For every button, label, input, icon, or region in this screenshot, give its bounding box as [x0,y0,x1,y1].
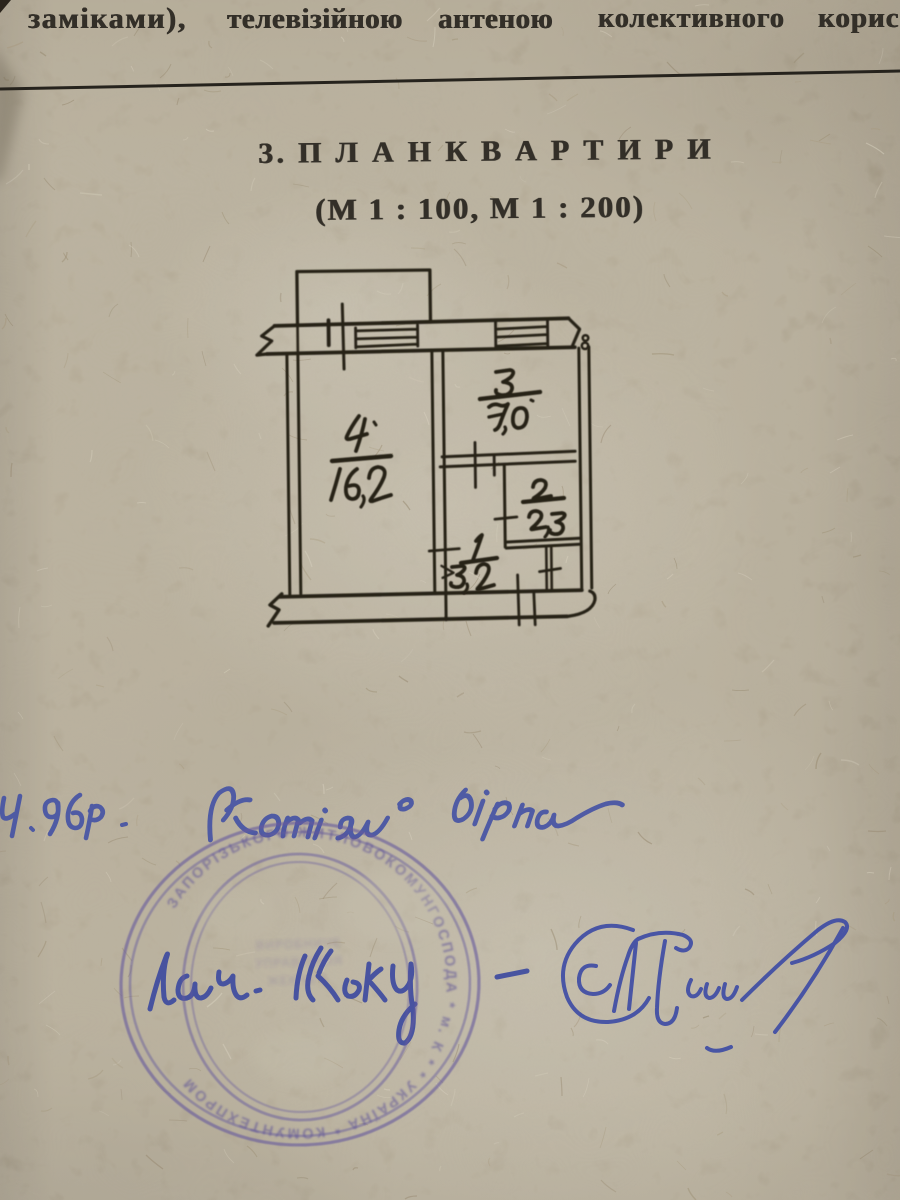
svg-text:ЖЕК № 5: ЖЕК № 5 [267,972,328,988]
svg-text:ВИРОБНИЧЕ: ВИРОБНИЧЕ [255,936,341,953]
